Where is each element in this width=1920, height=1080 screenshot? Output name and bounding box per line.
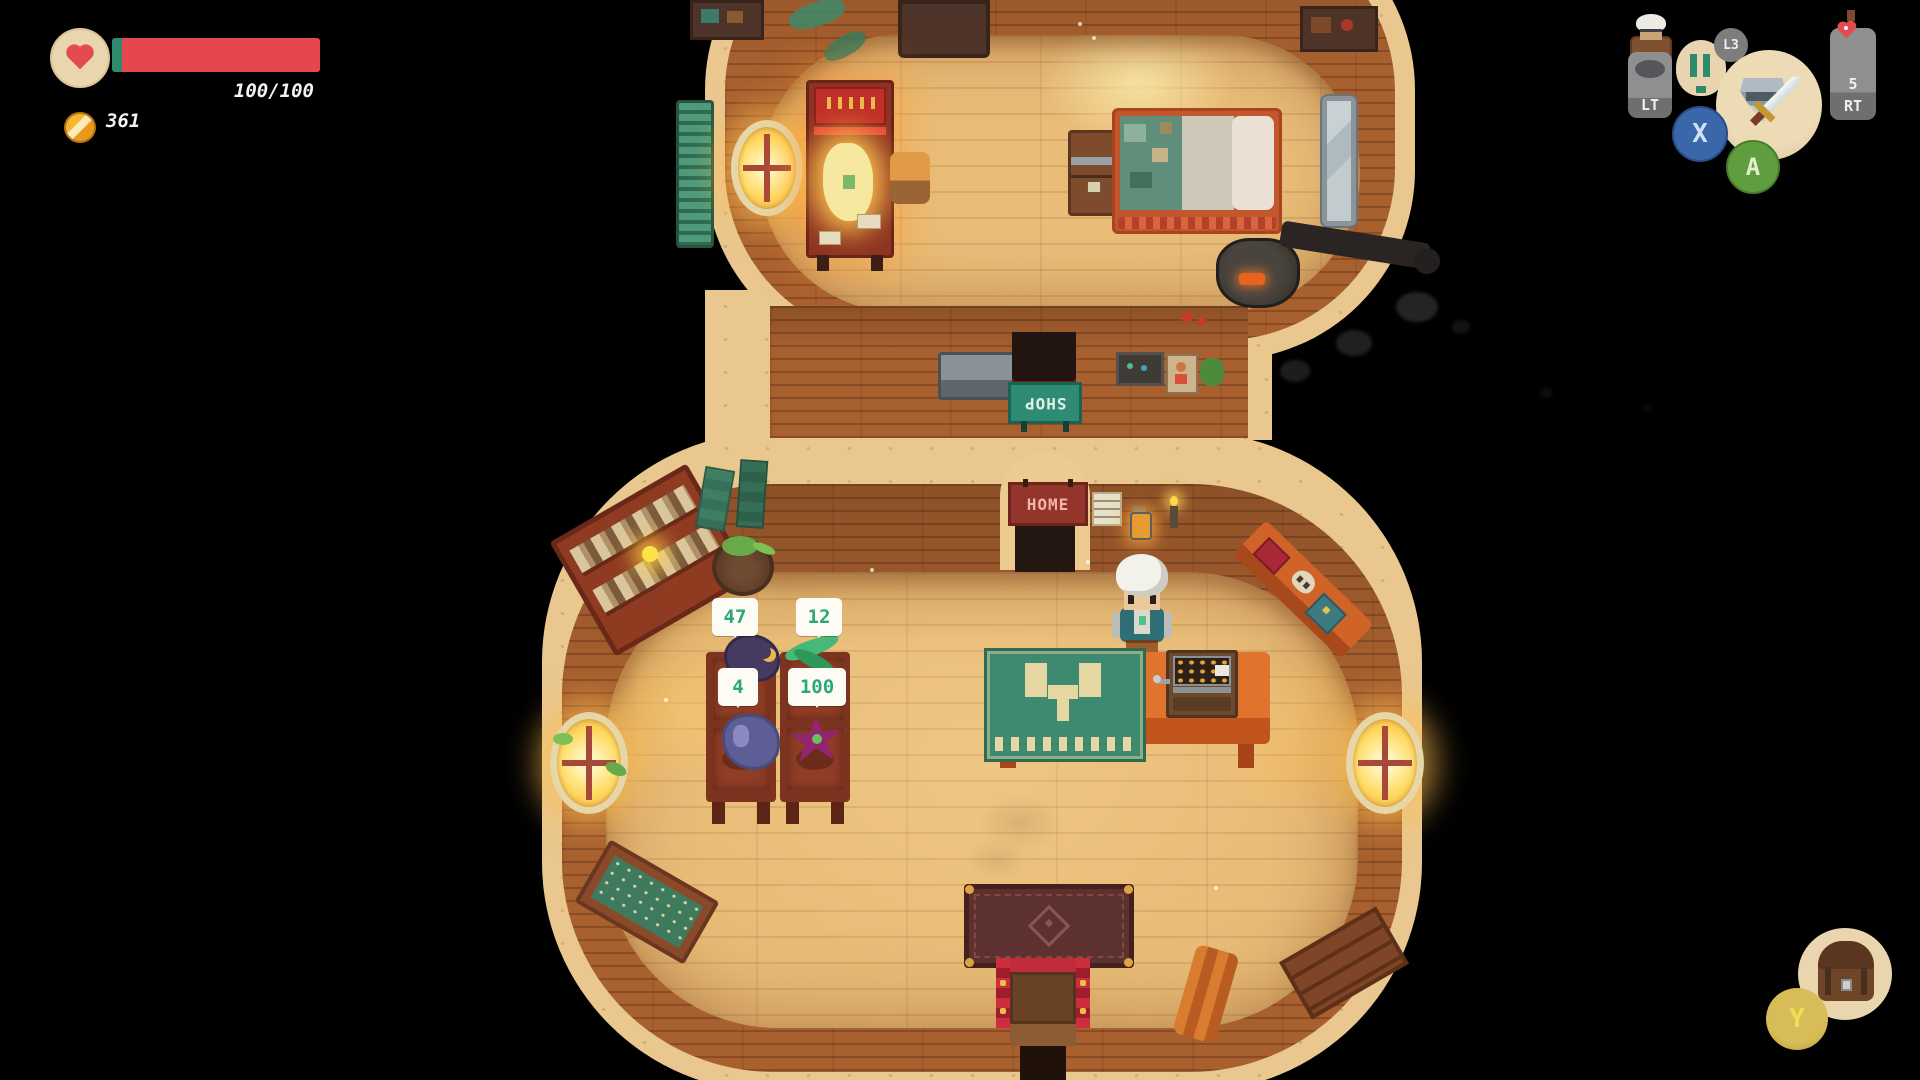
player-vest [1120,608,1164,642]
shop-sign-label: SHOP [1024,394,1067,413]
dust-speck [1214,886,1218,890]
cabinet-leg [871,255,883,271]
relic-core [812,734,822,744]
counter-cloth [984,648,1146,762]
window-frame [743,165,792,171]
window-plant [553,733,573,745]
armor-display-cabinet [806,80,894,258]
register-drawer [1173,697,1231,711]
cabinet-label [819,231,841,245]
price-value: 4 [732,676,743,698]
rt-label: RT [1844,97,1862,115]
register-shelf [1173,687,1231,693]
dust-speck [664,698,668,702]
entrance-floor [1010,972,1076,1024]
cabinet-label [857,214,881,229]
gold-coin-icon [64,112,96,143]
equipped-gear-circle [1716,50,1822,160]
candle-flame [1170,496,1178,506]
health-value: 100/100 [148,80,314,102]
price-value: 47 [724,606,747,628]
hanging-banner [736,459,769,529]
dust-speck [1092,36,1096,40]
stove-pipe-end [1414,248,1440,274]
cloth-motif [1013,663,1113,721]
entrance-stud [1000,1008,1006,1014]
cloth-border-pattern [995,737,1135,751]
home-doorway [1015,518,1075,572]
furnace [1216,238,1300,308]
skull-curio [1288,566,1319,597]
shop-sign: SHOP [1008,382,1082,424]
backpack-buckle [1841,979,1852,991]
teal-chest [1304,593,1346,635]
price-tag-1: 47 [712,598,758,636]
banner-pattern [820,97,880,109]
backpack-strap [1825,967,1831,995]
player-hair [1116,554,1168,596]
chest-latch [1087,181,1101,193]
dust-speck [1086,560,1090,564]
l3-label: L3 [1723,38,1739,53]
fabric-crescent [757,645,771,659]
home-sign: HOME [1008,482,1088,526]
window-plant [604,759,629,779]
chimney-smoke-puff [1540,388,1553,398]
lt-item-icon [1635,60,1665,78]
entrance-stud [1080,980,1086,986]
top-wall-cabinet [898,0,990,58]
chimney-smoke-puff [1396,292,1438,322]
table-leg [757,802,770,824]
rug-stud [965,885,974,894]
small-prop [1182,312,1192,322]
entrance-wall [996,958,1010,1028]
x-button: X [1672,106,1728,162]
figure-mark [843,175,855,189]
potion-glint [1844,26,1848,30]
health-orb [50,28,110,88]
plant-cauldron [712,538,774,596]
shop-round-window-left [550,712,628,814]
shelf-lamp [642,546,658,562]
bed-blanket [1120,116,1182,210]
sign-nail [1023,479,1028,487]
dust-speck [1078,22,1082,26]
backpack-icon [1818,941,1874,1001]
price-value: 100 [800,676,834,698]
price-tag-4: 100 [788,668,846,706]
bedroom-shelf-left [690,0,764,40]
chimney-smoke-puff [1642,404,1652,412]
a-button: A [1726,140,1780,194]
exterior-cellar-door [676,100,714,248]
wall-mirror [1320,94,1358,228]
gem-box [1252,537,1290,575]
entrance-exit [1020,1046,1066,1080]
y-button: Y [1766,988,1828,1050]
gold-value: 361 [106,110,140,132]
player-amulet [1139,616,1146,625]
sign-peg [1021,421,1027,432]
lantern-glass [1130,512,1152,540]
potion-heart [1839,23,1855,39]
health-potion-icon [1836,10,1866,56]
price-value: 12 [808,606,831,628]
dust-speck [870,568,874,572]
lt-label: LT [1641,96,1659,114]
entrance-stud [1080,1008,1086,1014]
pause-icon [1690,54,1697,77]
game-viewport[interactable]: SHOP HOME [0,0,1920,1080]
table-leg [831,802,844,824]
pause-icon [1703,54,1710,77]
shop-entrance [996,958,1090,1080]
pause-notch [1696,86,1706,93]
cabinet-leg [817,255,829,271]
entrance-wall [1076,958,1090,1028]
heart-icon [69,47,92,70]
x-label: X [1692,119,1708,149]
potion-count: 5 [1848,75,1857,93]
wall-picture [1166,354,1198,394]
health-bar [112,38,320,72]
entrance-stud [1000,980,1006,986]
entrance-rug [964,884,1134,968]
wall-lantern [1128,506,1150,540]
bed [1112,108,1282,234]
mirror-glass [1327,101,1351,221]
wall-candle [1168,496,1180,534]
rug-stud [1124,885,1133,894]
counter-leg [1238,744,1254,768]
companion-face [1640,29,1662,40]
bed-sheet [1182,116,1234,210]
sign-nail [1068,479,1073,487]
price-tag-3: 4 [718,668,758,706]
y-label: Y [1789,1004,1805,1034]
a-label: A [1746,153,1760,181]
backpack-strap [1861,967,1867,995]
bedroom-round-window [731,120,803,216]
cabinet-banner [814,87,886,125]
rug-stud [1124,958,1133,967]
register-crank-knob [1153,675,1161,683]
wall-picture [1116,352,1164,386]
sign-peg [1063,421,1069,432]
cabinet-trim [814,127,886,135]
price-tag-2: 12 [796,598,842,636]
bedroom-shelf-right [1300,6,1378,52]
candle-bracket [1170,506,1178,528]
register-receipt [1215,665,1229,676]
cash-register [1166,650,1238,718]
glowing-figure [823,143,873,221]
rug-stud [965,958,974,967]
lt-button: LT [1628,52,1672,118]
stool [890,152,930,204]
shop-round-window-right [1346,712,1424,814]
chimney-smoke-puff [1280,360,1310,382]
home-sign-label: HOME [1027,495,1070,514]
furnace-embers [1239,273,1265,285]
bed-pillow [1232,116,1274,210]
chimney-smoke-puff [1452,320,1470,334]
wall-plant [1200,358,1224,386]
backpack-flap [1818,941,1874,969]
wall-note [1092,492,1122,526]
table-leg [786,802,799,824]
window-frame [1358,760,1412,766]
chimney-smoke-puff [1336,330,1372,356]
bed-trim [1118,217,1276,229]
table-leg [712,802,725,824]
entrance-step [1010,1024,1076,1046]
crystal-facet [733,725,749,747]
small-prop [1198,317,1206,325]
